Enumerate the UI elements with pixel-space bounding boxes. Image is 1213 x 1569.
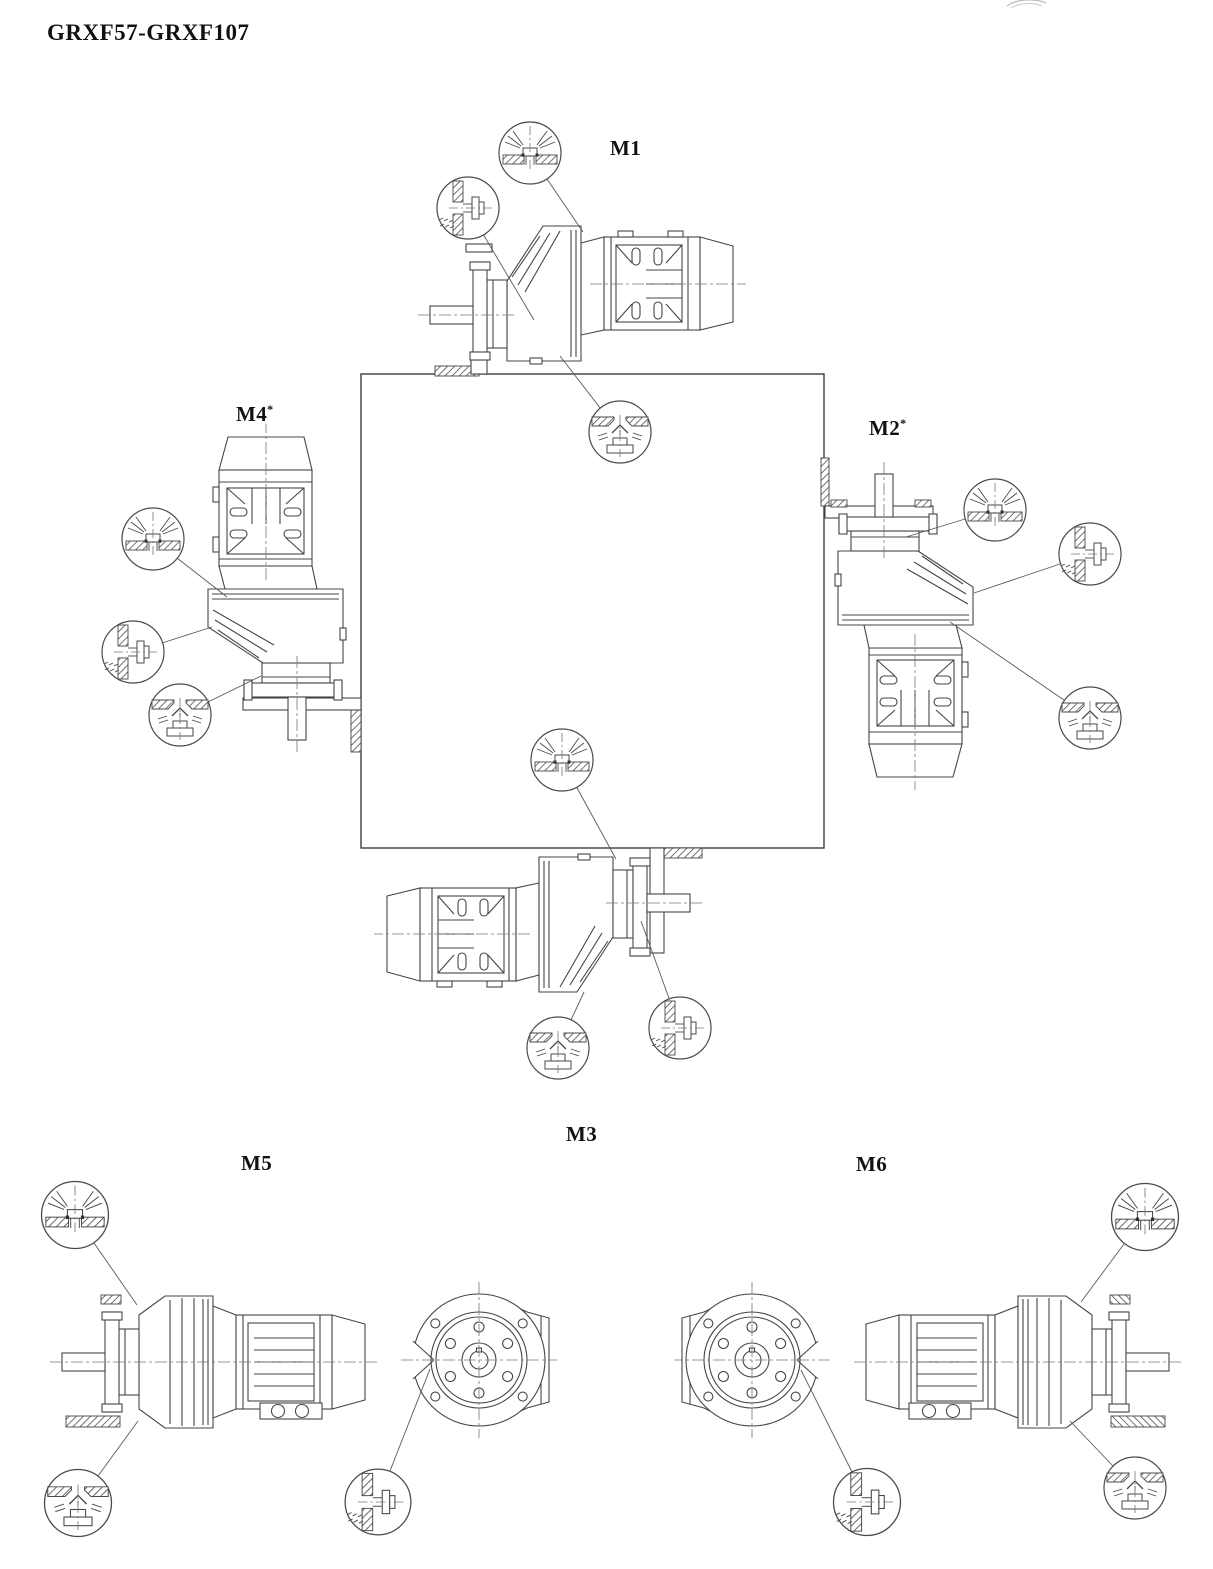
position-m6-front-view [674,1282,900,1535]
m6-breather-leader-line [1081,1244,1124,1302]
m5-gearmotor-side-view [50,1296,378,1428]
catalog-page: GRXF57-GRXF107 [0,0,1213,1569]
position-m6-drawing [853,1184,1181,1519]
position-m1-drawing [418,122,746,463]
m1-breather-leader-line [547,179,583,232]
position-m5-drawing [42,1182,378,1537]
m4-mounting-wall-hatch [351,710,361,752]
m4-oil-level-leader-line [162,627,212,643]
m6-mounting-foot-hatch [1111,1416,1165,1427]
oil-level-plug-icon [649,997,711,1059]
breather-plug-icon [964,479,1026,541]
oil-drain-plug-icon [149,684,211,746]
oil-level-plug-icon [834,1469,901,1536]
m2-oil-level-leader-line [974,564,1060,593]
oil-drain-plug-icon [527,1017,589,1079]
oil-level-plug-icon [345,1469,411,1535]
oil-level-plug-icon [437,177,499,239]
breather-plug-icon [42,1182,109,1249]
position-label-m3: M3 [566,1122,597,1147]
m5-front-oil-level-leader-line [390,1369,430,1471]
m6-gearmotor-side-view [853,1296,1181,1428]
position-m2-drawing [821,458,1121,790]
position-m4-drawing [102,424,361,752]
position-label-m4: M4* [236,402,274,427]
position-label-m1: M1 [610,136,641,161]
oil-drain-plug-icon [589,401,651,463]
mounting-positions-diagram [0,0,1213,1569]
m1-oil-drain-leader-line [560,356,601,409]
m3-mounting-wall-hatch [664,848,702,858]
position-label-m6: M6 [856,1152,887,1177]
m5-oil-drain-leader-line [98,1421,138,1476]
oil-drain-plug-icon [1104,1457,1166,1519]
m2-mounting-wall-hatch [821,458,829,506]
m6-front-oil-level-leader-line [801,1370,852,1472]
m5-flange-front-view [401,1282,557,1438]
m3-oil-drain-leader-line [571,992,584,1020]
oil-level-plug-icon [102,621,164,683]
m6-oil-drain-leader-line [1070,1421,1113,1466]
breather-plug-icon [531,729,593,791]
m2-oil-drain-leader-line [950,622,1064,700]
m5-mounting-foot-hatch [66,1416,120,1427]
breather-plug-icon [122,508,184,570]
m6-flange-front-view [674,1282,830,1438]
oil-drain-plug-icon [45,1470,112,1537]
oil-level-plug-icon [1059,523,1121,585]
position-m3-drawing [374,729,711,1079]
position-label-m5: M5 [241,1151,272,1176]
position-label-m2: M2* [869,416,907,441]
oil-drain-plug-icon [1059,687,1121,749]
breather-plug-icon [1112,1184,1179,1251]
breather-plug-icon [499,122,561,184]
position-m5-front-view [345,1282,557,1535]
